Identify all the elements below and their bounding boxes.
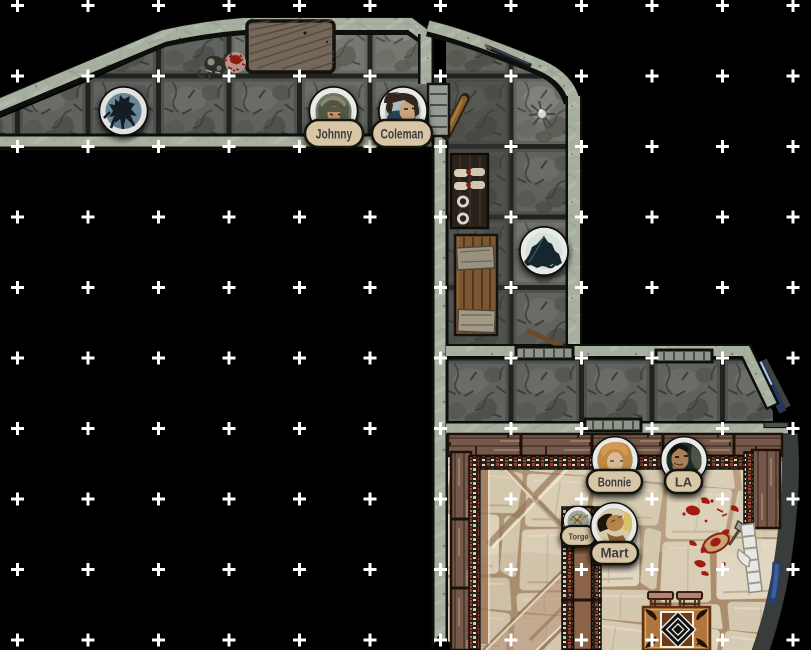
svg-text:LA: LA bbox=[675, 475, 693, 490]
svg-text:Mart: Mart bbox=[601, 546, 629, 561]
svg-text:Bonnie: Bonnie bbox=[598, 475, 632, 490]
svg-text:Coleman: Coleman bbox=[381, 126, 424, 142]
svg-text:Torge: Torge bbox=[569, 532, 589, 542]
svg-text:Johnny: Johnny bbox=[316, 126, 353, 142]
